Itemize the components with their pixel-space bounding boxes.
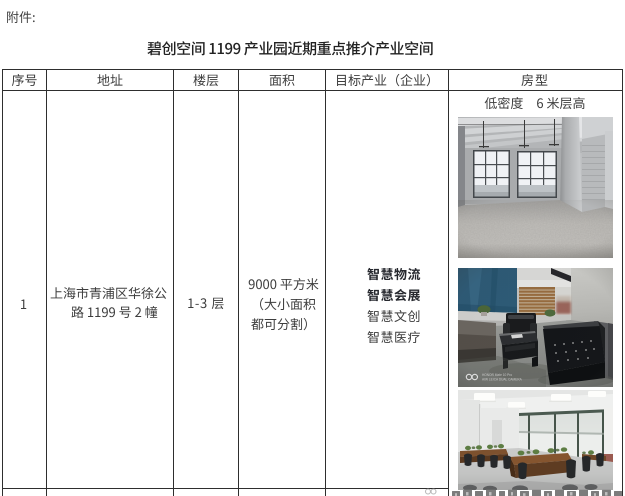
svg-text:HONOR Mate 10 Pro: HONOR Mate 10 Pro [482,373,512,377]
svg-text:AIW LEICA DUAL CAMERA: AIW LEICA DUAL CAMERA [482,378,523,382]
